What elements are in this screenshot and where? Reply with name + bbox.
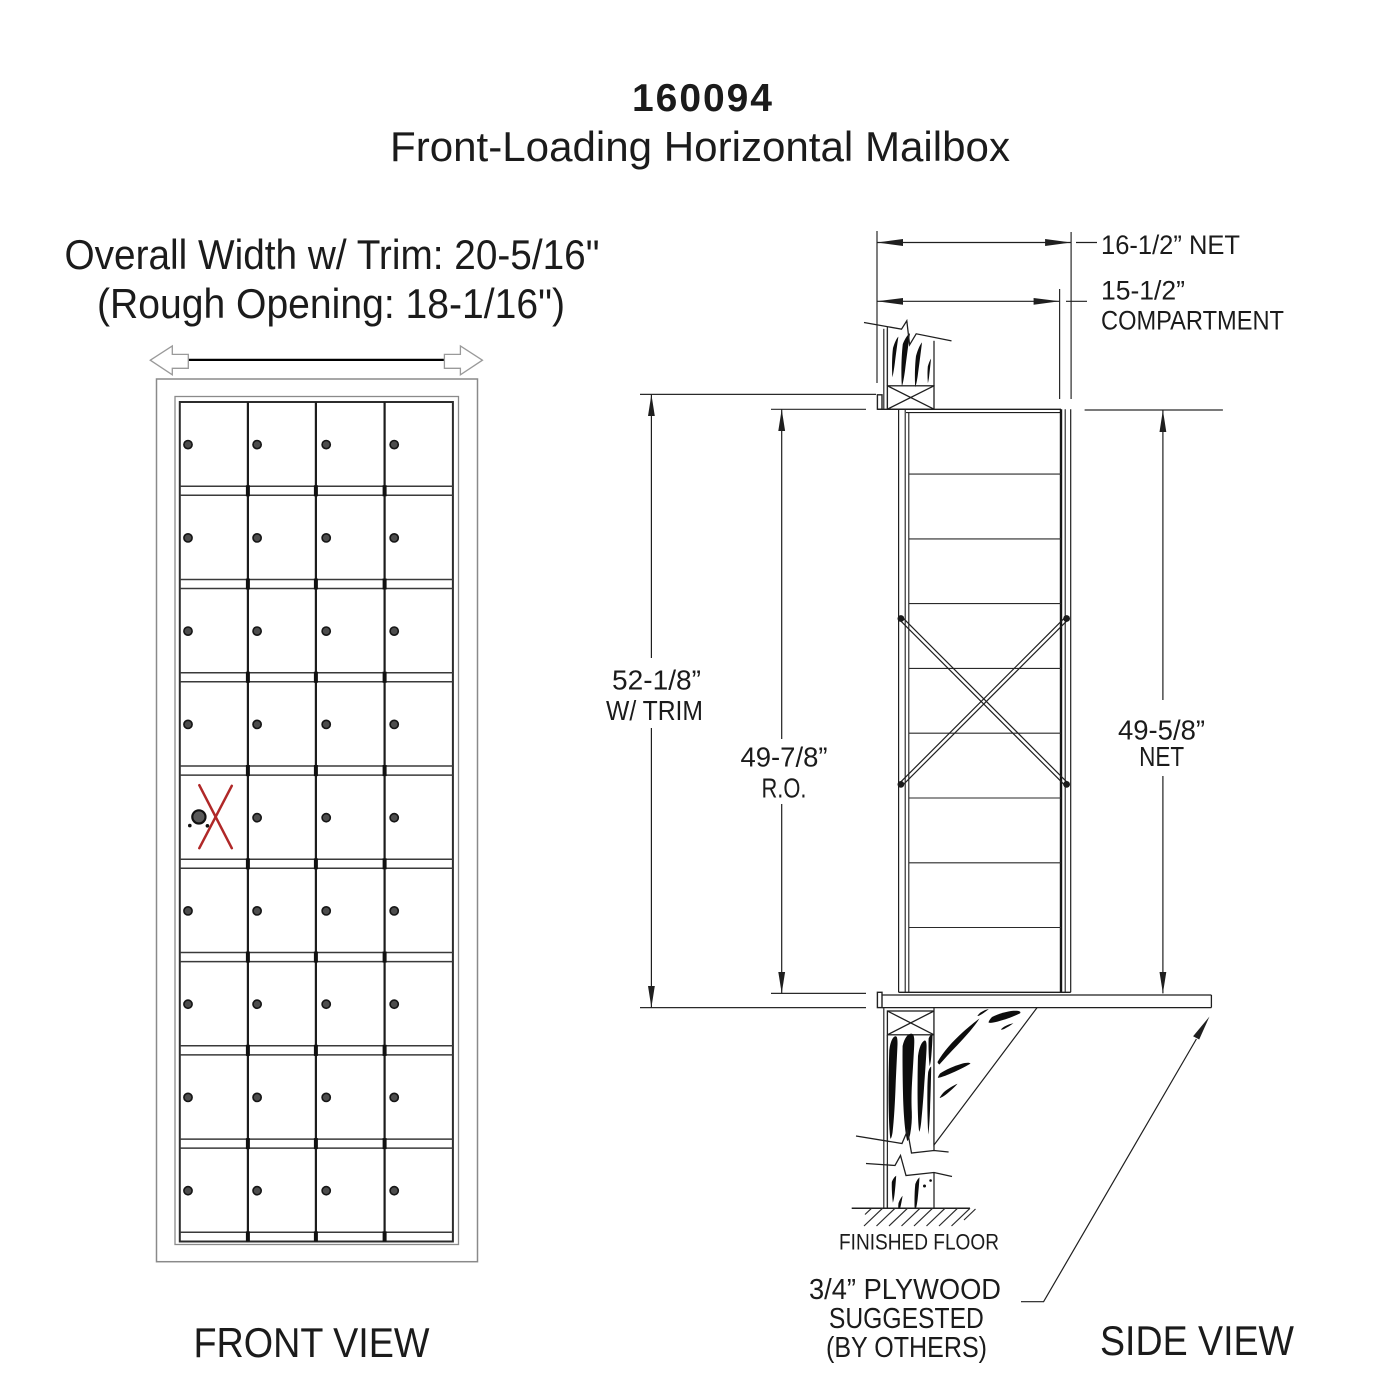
svg-text:SIDE VIEW: SIDE VIEW: [1100, 1317, 1294, 1364]
svg-text:(Rough Opening: 18-1/16"): (Rough Opening: 18-1/16"): [97, 280, 565, 327]
svg-text:FINISHED FLOOR: FINISHED FLOOR: [839, 1230, 999, 1255]
svg-text:Front-Loading Horizontal Mailb: Front-Loading Horizontal Mailbox: [390, 123, 1010, 170]
svg-text:NET: NET: [1139, 741, 1184, 772]
svg-text:15-1/2”: 15-1/2”: [1101, 276, 1185, 306]
svg-text:W/ TRIM: W/ TRIM: [606, 695, 703, 726]
svg-text:49-7/8”: 49-7/8”: [741, 742, 828, 773]
svg-text:SUGGESTED: SUGGESTED: [829, 1303, 984, 1335]
svg-text:R.O.: R.O.: [762, 773, 807, 804]
svg-text:COMPARTMENT: COMPARTMENT: [1101, 306, 1284, 336]
svg-text:(BY OTHERS): (BY OTHERS): [826, 1332, 987, 1364]
svg-text:16-1/2” NET: 16-1/2” NET: [1101, 230, 1240, 260]
svg-text:Overall Width w/ Trim: 20-5/16: Overall Width w/ Trim: 20-5/16": [65, 231, 600, 278]
svg-text:52-1/8”: 52-1/8”: [612, 665, 701, 696]
svg-text:FRONT VIEW: FRONT VIEW: [194, 1319, 430, 1366]
svg-text:160094: 160094: [632, 77, 772, 120]
svg-text:3/4” PLYWOOD: 3/4” PLYWOOD: [809, 1274, 1001, 1306]
